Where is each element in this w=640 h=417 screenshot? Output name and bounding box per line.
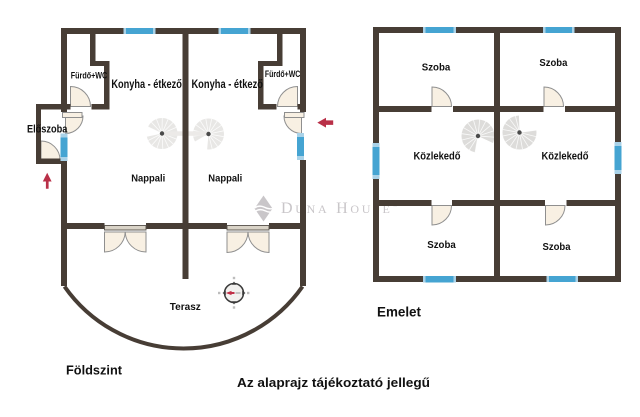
svg-text:Fürdő+WC: Fürdő+WC [71,71,108,82]
svg-text:Emelet: Emelet [377,304,421,320]
svg-text:Nappali: Nappali [208,173,242,184]
svg-text:Az alaprajz tájékoztató jelleg: Az alaprajz tájékoztató jellegű [237,375,430,390]
svg-text:Szoba: Szoba [422,62,451,74]
svg-text:Konyha - étkező: Konyha - étkező [191,77,263,91]
svg-text:Szoba: Szoba [543,241,571,253]
svg-text:Konyha - étkező: Konyha - étkező [111,77,182,91]
svg-text:Nappali: Nappali [131,173,165,184]
svg-text:Közlekedő: Közlekedő [414,151,461,163]
svg-text:Szoba: Szoba [539,57,567,69]
svg-text:Szoba: Szoba [427,239,456,251]
svg-text:Fürdő+WC: Fürdő+WC [265,69,301,80]
svg-text:Földszint: Földszint [66,363,123,378]
svg-text:Előszoba: Előszoba [27,124,68,136]
svg-text:Terasz: Terasz [170,301,201,313]
svg-text:Közlekedő: Közlekedő [542,151,589,163]
